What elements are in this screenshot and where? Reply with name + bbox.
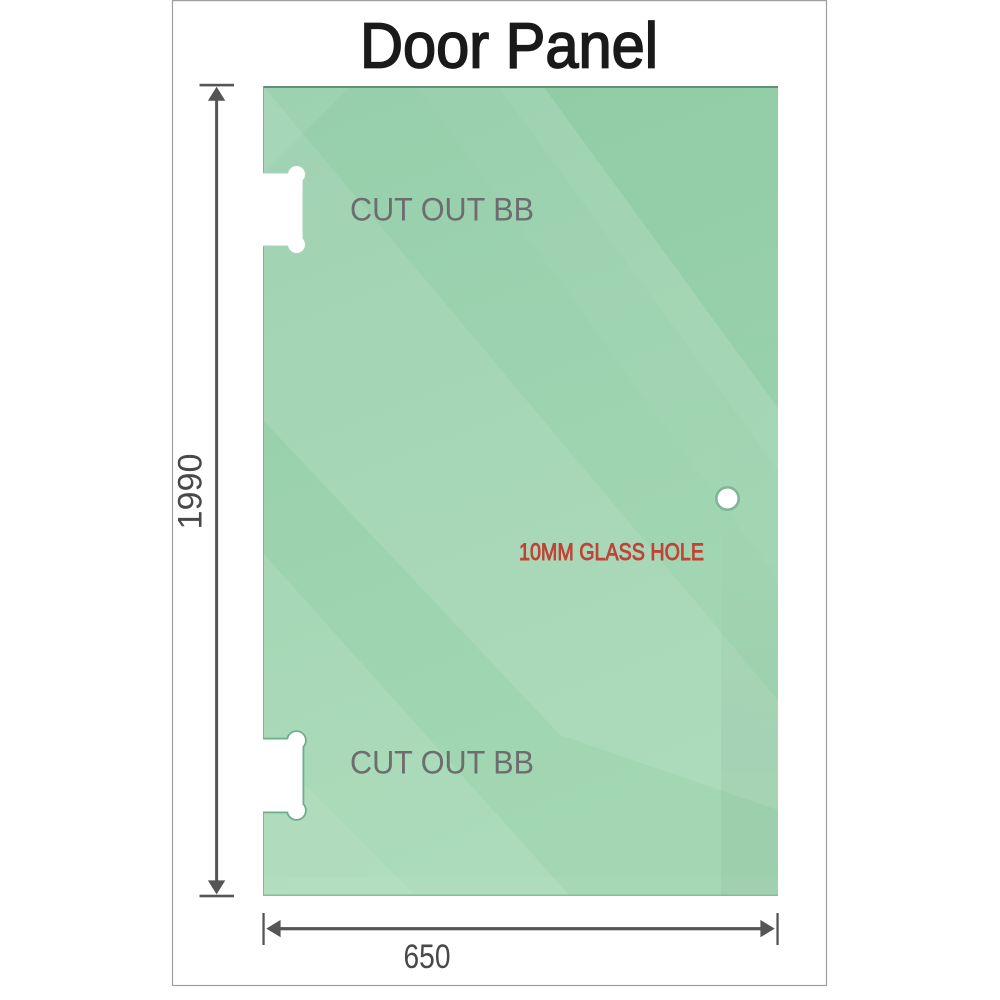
- svg-text:CUT OUT BB: CUT OUT BB: [350, 745, 534, 781]
- svg-text:CUT OUT BB: CUT OUT BB: [350, 192, 534, 228]
- svg-text:10MM GLASS HOLE: 10MM GLASS HOLE: [519, 539, 704, 566]
- svg-text:Door Panel: Door Panel: [360, 10, 658, 82]
- svg-text:650: 650: [404, 938, 451, 976]
- svg-text:1990: 1990: [172, 454, 210, 530]
